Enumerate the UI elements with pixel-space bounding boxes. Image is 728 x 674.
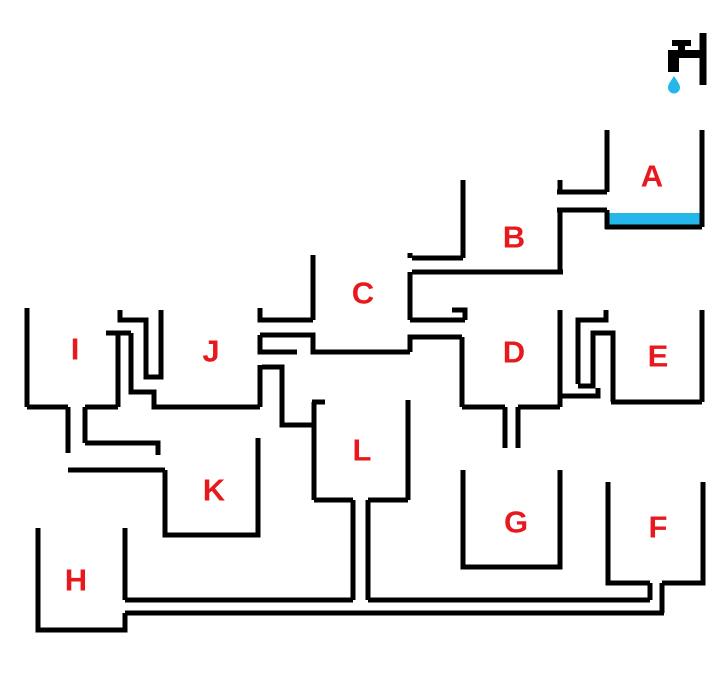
container-label-D: D [503,335,525,370]
container-label-F: F [649,510,668,545]
container-label-K: K [203,473,226,508]
diagram-background [0,0,728,674]
container-label-E: E [648,339,669,374]
container-label-I: I [71,332,80,367]
faucet-spout [668,50,679,72]
water-level-a [609,213,700,225]
container-label-A: A [641,159,663,194]
container-label-B: B [503,220,525,255]
container-label-H: H [65,563,87,598]
container-label-L: L [353,433,372,468]
container-label-G: G [504,505,528,540]
container-label-C: C [352,276,374,311]
container-label-J: J [202,334,219,369]
water-puzzle-diagram: ABCDEFGHIJKL [0,0,728,674]
faucet-handle-bar [672,40,691,46]
puzzle-page: ABCDEFGHIJKL [0,0,728,674]
